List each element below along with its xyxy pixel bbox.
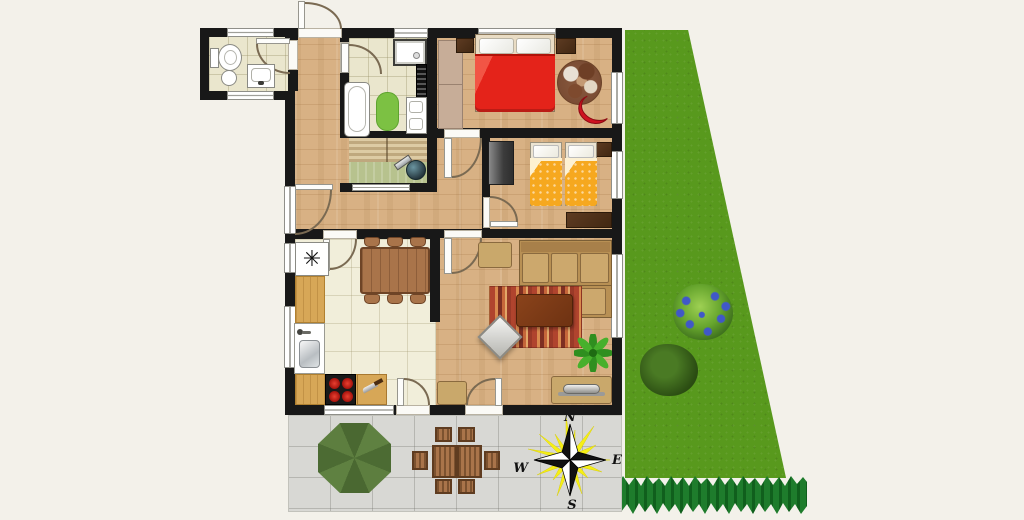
sofa-cushion: [522, 253, 549, 283]
wc-sink-basin: [251, 68, 271, 82]
door-opening-living: [444, 230, 482, 238]
vanity-basin: [409, 118, 423, 130]
double-bed-blanket: [475, 54, 555, 112]
window-wc-bottom: [227, 91, 274, 100]
window-wc-top: [227, 28, 274, 37]
entry-door-arc: [305, 2, 342, 29]
wall-bathroom-right: [427, 38, 437, 192]
dark-bush: [640, 344, 698, 396]
door-opening-bedroom2: [483, 197, 490, 228]
sofa-chaise-cushion: [580, 288, 606, 315]
door-opening-patio-kitchen: [396, 405, 430, 415]
bathroom-door-leaf: [341, 43, 349, 73]
shower-drain: [413, 52, 420, 59]
bathtub-inner: [348, 86, 366, 132]
door-opening-bedroom1: [444, 129, 480, 138]
patio-door-living-leaf: [495, 378, 502, 406]
vanity-basin: [409, 101, 423, 113]
parasol: [318, 423, 391, 493]
towel-radiator: [416, 64, 427, 98]
nightstand: [556, 38, 576, 54]
storage-shelf-divider: [386, 138, 388, 162]
door-opening-patio-living: [465, 405, 503, 415]
garden-lawn: [625, 30, 788, 478]
dining-chair: [364, 294, 380, 304]
outdoor-chair: [435, 479, 452, 494]
outdoor-chair: [435, 427, 452, 442]
entry-door-leaf: [298, 1, 305, 29]
living-door-leaf: [444, 238, 452, 274]
stove-burner: [342, 378, 353, 389]
window-kitchen-bottom: [324, 405, 394, 415]
dining-table: [360, 247, 430, 294]
kitchen-sink-basin: [299, 340, 320, 368]
vacuum-cleaner: [406, 160, 426, 180]
door-opening-entry: [298, 28, 342, 38]
shower: [393, 39, 427, 66]
bedroom2-dresser: [566, 212, 612, 228]
outdoor-table: [457, 445, 482, 478]
wall-wc-left: [200, 28, 209, 100]
stove-burner: [329, 391, 340, 402]
pouf: [478, 242, 512, 268]
bidet: [221, 70, 237, 86]
compass-rose: N E S W: [512, 410, 632, 510]
red-armchair: [575, 94, 613, 128]
stove-burner: [342, 391, 353, 402]
outdoor-chair: [412, 451, 428, 470]
sofa-cushion: [551, 253, 578, 283]
flowering-bush: [673, 284, 733, 340]
pillow: [479, 38, 514, 54]
window-living-right: [611, 254, 623, 338]
bedroom1-wardrobe-divider: [438, 84, 463, 85]
single-bed-cover: [530, 158, 562, 206]
stove-burner: [329, 378, 340, 389]
compass-label-east: E: [611, 453, 623, 468]
window-bedroom2-right: [611, 151, 623, 199]
pouf: [437, 381, 467, 405]
outdoor-chair: [458, 427, 475, 442]
single-bed-cover: [565, 158, 597, 206]
wall-kitchen-living: [430, 238, 440, 322]
outdoor-table: [432, 445, 457, 478]
bedroom2-wardrobe: [488, 141, 514, 185]
patio-door-kitchen-leaf: [397, 378, 404, 406]
toilet-bowl-inner: [224, 50, 237, 65]
outdoor-chair: [458, 479, 475, 494]
sliding-door-storage: [352, 184, 410, 191]
dining-chair: [387, 294, 403, 304]
sofa-cushion: [580, 253, 609, 283]
freezer-icon: ✳: [303, 248, 321, 270]
dining-chair: [410, 294, 426, 304]
floor-plan: N E S W: [0, 0, 1024, 520]
nightstand: [456, 38, 474, 53]
hedge: [617, 474, 807, 514]
dining-chair: [410, 237, 426, 247]
fridge-freezer: ✳: [295, 242, 329, 276]
compass-label-west: W: [513, 461, 529, 476]
pillow: [533, 145, 559, 158]
bedroom1-door-leaf: [444, 138, 452, 178]
compass-label-south: S: [567, 498, 576, 510]
window-bathroom-top: [394, 28, 428, 38]
wc-sink-faucet: [258, 81, 264, 85]
pillow: [516, 38, 551, 54]
pillow: [568, 145, 594, 158]
outdoor-chair: [484, 451, 500, 470]
sofa-back: [521, 242, 610, 252]
dining-chair: [364, 237, 380, 247]
kitchen-faucet-spout: [302, 331, 311, 334]
dining-chair: [387, 237, 403, 247]
kitchen-counter-left: [295, 276, 325, 323]
coffee-table: [516, 294, 573, 327]
sideboard-handle: [563, 384, 600, 394]
bath-mat: [376, 92, 399, 131]
door-opening-kitchen: [323, 230, 357, 239]
potted-plant: [574, 334, 612, 372]
compass-star: [534, 424, 606, 496]
